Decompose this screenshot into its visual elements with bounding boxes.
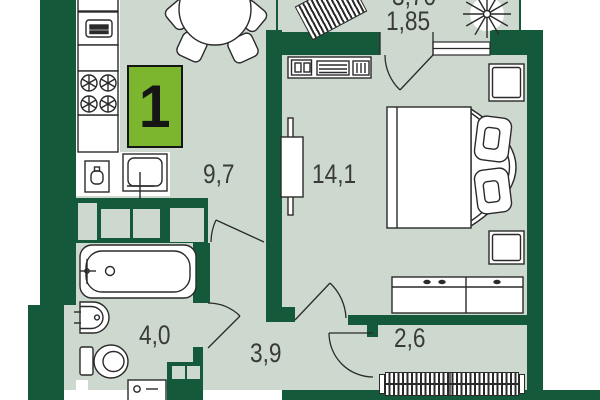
bathtub-icon [80, 245, 196, 298]
room-area-label-bathroom: 4,0 [139, 322, 171, 349]
tv-console-icon [288, 57, 371, 78]
room-area-label-bedroom: 14,1 [312, 161, 356, 188]
sliding-panel-icon [281, 118, 303, 215]
toilet-icon [80, 345, 128, 378]
kitchen-sink-icon [123, 154, 167, 199]
room-area-label-hallway: 3,9 [250, 340, 282, 367]
window [433, 42, 490, 55]
plan-linework [0, 0, 600, 400]
dresser-icon [392, 277, 523, 313]
apartment-number: 1 [139, 72, 171, 141]
plant-icon [463, 0, 511, 38]
washing-machine-icon [128, 380, 166, 400]
room-area-label-balcony-reduced: 1,85 [386, 8, 430, 35]
stove-icon [78, 71, 118, 115]
oven-icon [78, 12, 118, 45]
washbasin-icon [74, 302, 109, 333]
room-area-label-storage: 2,6 [394, 325, 426, 352]
kettle-unit-icon [85, 161, 109, 192]
floor-plan: 1 9,7 14,1 4,0 3,9 2,6 3,70 1,85 [0, 0, 600, 400]
fridge-icon [78, 0, 118, 11]
apartment-number-badge: 1 [127, 65, 183, 148]
room-area-label-kitchen-living: 9,7 [203, 161, 235, 188]
